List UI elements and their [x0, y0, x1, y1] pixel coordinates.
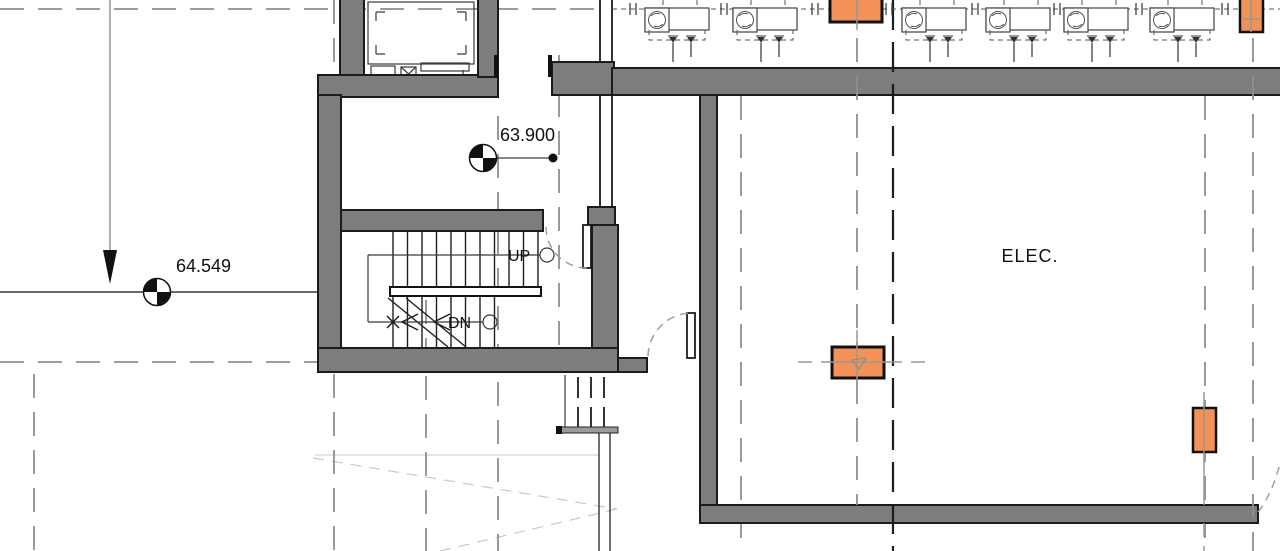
wall-segment-thin	[600, 0, 612, 207]
wall-segment	[340, 0, 364, 77]
room-label-elec: ELEC.	[1001, 246, 1058, 266]
floor-plan-screenshot: UP DN 63.900 64.549 ELEC.	[0, 0, 1280, 551]
floor-plan-canvas: UP DN 63.900 64.549 ELEC.	[0, 0, 1280, 551]
wall-segment	[552, 62, 614, 95]
stair-center-rail	[390, 287, 541, 296]
stair-up-label: UP	[508, 248, 530, 265]
wall-segment	[318, 75, 498, 97]
wall-segment	[318, 95, 341, 372]
wall-segment	[318, 348, 618, 372]
leader-dot	[549, 154, 558, 163]
stair-dn-label: DN	[448, 315, 471, 332]
door-jamb-cap	[494, 55, 498, 77]
spot-elevation-marker-icon	[144, 279, 171, 306]
spot-elevation-marker-icon	[470, 145, 497, 172]
wall-segment	[700, 505, 1258, 523]
wall-segment	[700, 95, 717, 523]
wall-segment	[592, 225, 618, 352]
equipment-box-orange	[830, 0, 882, 22]
door-leaf	[687, 313, 695, 358]
spot-elevation-value: 64.549	[176, 256, 231, 276]
wall-segment	[612, 68, 1280, 95]
door-leaf	[583, 225, 591, 268]
wall-segment	[341, 210, 543, 231]
wall-segment	[618, 358, 647, 372]
spot-elevation-value: 63.900	[500, 125, 555, 145]
door-jamb-cap	[548, 55, 552, 77]
